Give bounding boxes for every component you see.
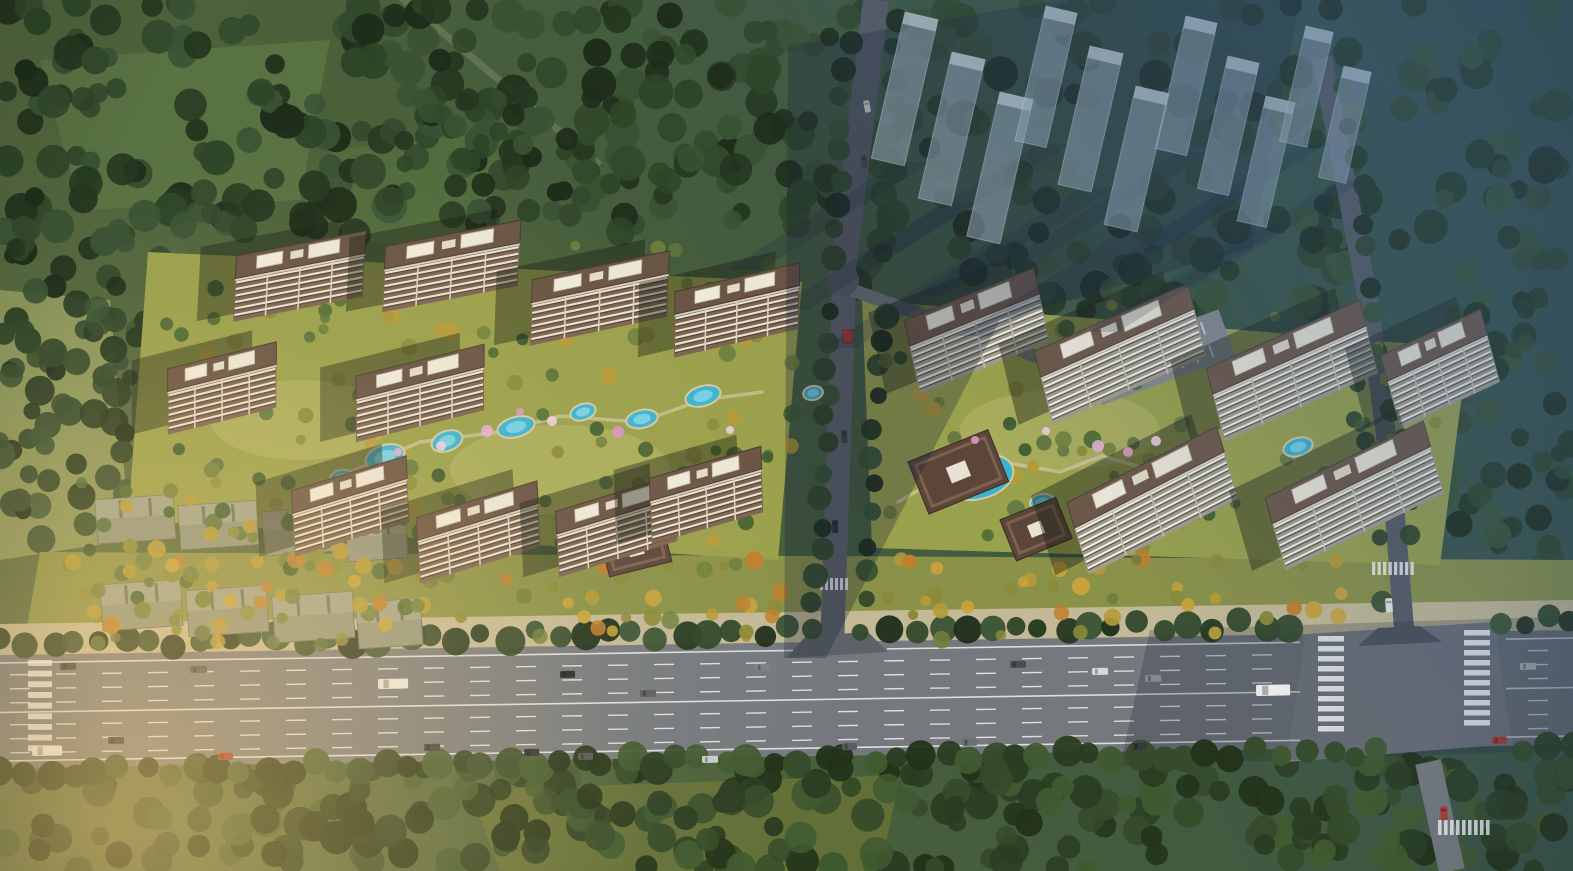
vignette-overlay (0, 0, 1573, 871)
aerial-render-canvas (0, 0, 1573, 871)
light-overlay-layer (0, 0, 1573, 871)
aerial-render-stage (0, 0, 1573, 871)
